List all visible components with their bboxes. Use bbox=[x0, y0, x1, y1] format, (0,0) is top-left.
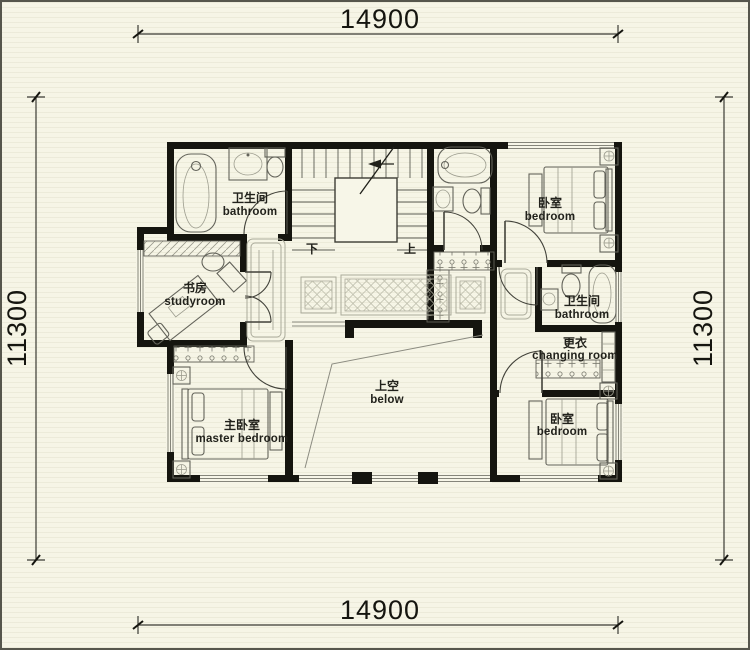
label-bathroom-right-en: bathroom bbox=[555, 309, 610, 321]
bookshelf bbox=[144, 241, 240, 256]
dimension-right: 11300 bbox=[688, 92, 733, 565]
stairs: 下 上 bbox=[292, 147, 427, 256]
void-balustrade bbox=[292, 320, 482, 338]
dimension-left-value: 11300 bbox=[2, 289, 32, 367]
label-study-en: studyroom bbox=[164, 296, 225, 308]
label-changing-room-en: changing room bbox=[532, 350, 618, 362]
label-bathroom-top-left-zh: 卫生间 bbox=[232, 190, 268, 205]
dimension-bottom: 14900 bbox=[133, 595, 623, 634]
sink-icon bbox=[541, 289, 558, 310]
label-master-bedroom-zh: 主卧室 bbox=[224, 417, 260, 432]
toilet-icon bbox=[463, 188, 490, 214]
floor-plan-drawing: 14900 14900 11300 11300 bbox=[2, 2, 750, 652]
dimension-top-value: 14900 bbox=[340, 4, 420, 34]
stairs-down-label: 下 bbox=[306, 242, 318, 256]
bathtub-icon bbox=[176, 154, 216, 232]
dimension-bottom-value: 14900 bbox=[340, 595, 420, 625]
label-master-bedroom-en: master bedroom bbox=[196, 433, 289, 445]
dimension-right-value: 11300 bbox=[688, 289, 718, 367]
sink-icon bbox=[433, 187, 453, 211]
label-void-zh: 上空 bbox=[375, 378, 399, 393]
double-door-arc bbox=[245, 272, 271, 322]
dimension-top: 14900 bbox=[133, 4, 623, 43]
label-bedroom-top-right-zh: 卧室 bbox=[538, 195, 562, 210]
nightstand bbox=[173, 367, 190, 384]
corridor-rug bbox=[247, 239, 285, 341]
dimension-left: 11300 bbox=[2, 92, 45, 565]
bathtub-icon bbox=[438, 147, 492, 183]
sink-icon bbox=[229, 148, 267, 180]
label-study-zh: 书房 bbox=[183, 280, 207, 295]
toilet-icon bbox=[265, 148, 285, 177]
label-bathroom-right-zh: 卫生间 bbox=[564, 293, 600, 308]
label-void-en: below bbox=[370, 394, 404, 406]
label-changing-room-zh: 更衣 bbox=[563, 335, 587, 350]
label-bathroom-top-left-en: bathroom bbox=[223, 206, 278, 218]
label-bedroom-top-right-en: bedroom bbox=[525, 211, 576, 223]
floor-plan-page: 14900 14900 11300 11300 bbox=[0, 0, 750, 650]
door-arc bbox=[444, 212, 482, 250]
stairs-up-label: 上 bbox=[404, 241, 416, 256]
label-bedroom-bottom-right-zh: 卧室 bbox=[550, 411, 574, 426]
label-bedroom-bottom-right-en: bedroom bbox=[537, 426, 588, 438]
wardrobe-hangers bbox=[174, 346, 254, 362]
door-arc bbox=[505, 221, 547, 263]
hall-rug bbox=[301, 275, 485, 315]
passage-rug bbox=[501, 269, 531, 319]
